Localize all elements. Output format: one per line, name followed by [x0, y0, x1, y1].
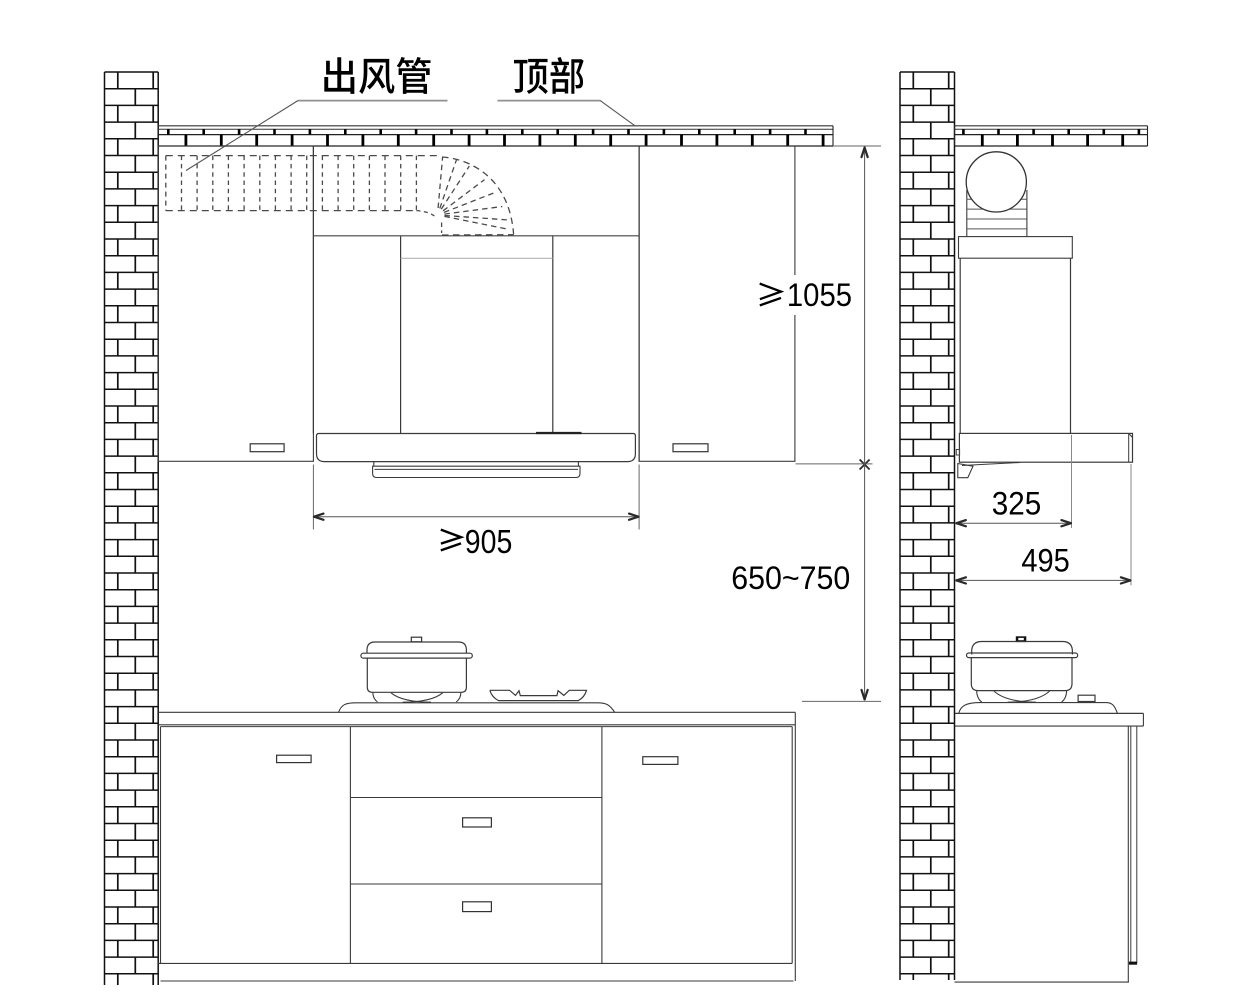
- svg-text:1055: 1055: [787, 277, 852, 313]
- svg-text:325: 325: [992, 485, 1041, 521]
- svg-text:650~750: 650~750: [731, 560, 850, 596]
- svg-text:905: 905: [465, 523, 513, 560]
- svg-text:495: 495: [1021, 543, 1069, 579]
